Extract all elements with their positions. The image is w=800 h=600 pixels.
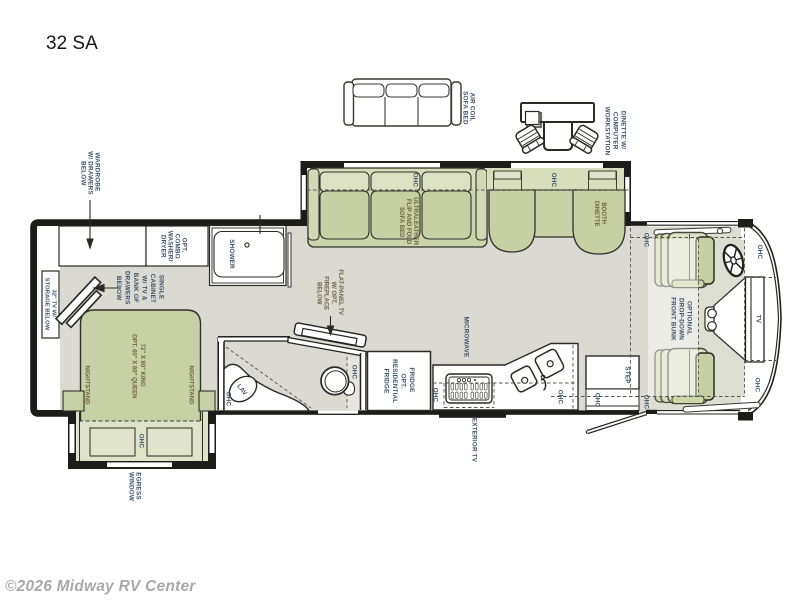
svg-text:OHC: OHC (594, 393, 601, 408)
svg-text:SHOWER: SHOWER (228, 239, 235, 269)
svg-text:©2026 Midway RV Center: ©2026 Midway RV Center (5, 578, 196, 595)
svg-text:NIGHTSTAND: NIGHTSTAND (188, 366, 194, 406)
svg-text:NIGHTSTAND: NIGHTSTAND (84, 366, 90, 406)
svg-text:OHC: OHC (550, 173, 557, 188)
svg-text:MICROWAVE: MICROWAVE (463, 317, 470, 358)
svg-text:OHC: OHC (643, 233, 650, 248)
svg-text:STEP: STEP (624, 366, 631, 383)
svg-text:OHC: OHC (225, 392, 232, 407)
svg-text:OHC: OHC (557, 390, 564, 405)
svg-text:OHC: OHC (351, 365, 358, 380)
svg-text:TV: TV (755, 315, 762, 324)
svg-text:OPTIONAL DROP-DOWNFRONT BUNK: OPTIONAL DROP-DOWNFRONT BUNK (670, 297, 693, 341)
svg-text:OHC: OHC (754, 378, 761, 393)
svg-text:32 SA: 32 SA (46, 33, 98, 54)
svg-text:OHC: OHC (138, 434, 145, 449)
svg-text:OHC: OHC (412, 173, 419, 188)
svg-text:OHC: OHC (432, 388, 439, 403)
svg-text:EGRESS WINDOW: EGRESS WINDOW (128, 472, 142, 501)
svg-text:EXTERIOR TV: EXTERIOR TV (471, 418, 478, 463)
svg-text:OHC: OHC (643, 395, 650, 410)
svg-text:OHC: OHC (756, 245, 763, 260)
svg-text:BOOTH DINETTE: BOOTH DINETTE (593, 201, 606, 227)
svg-text:WARDROBE W/ DRAWERSBELOW: WARDROBE W/ DRAWERSBELOW (80, 151, 101, 195)
svg-text:DINETTE W/ COMPUTERWORKSTATION: DINETTE W/ COMPUTERWORKSTATION (604, 107, 627, 156)
svg-text:AIR COIL SOFA BED: AIR COIL SOFA BED (462, 91, 476, 125)
